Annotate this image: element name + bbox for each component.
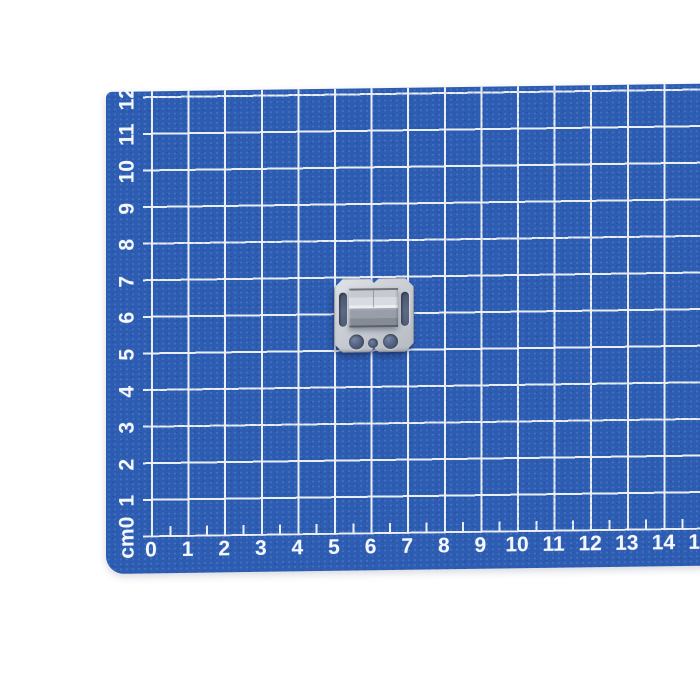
ruler-number-bottom: 7 [401,536,413,557]
ruler-number-bottom: 10 [505,534,528,555]
ruler-number-left: 10 [117,160,138,184]
ruler-number-left: 3 [117,422,138,434]
ruler-number-bottom: 4 [292,537,304,558]
ruler-number-left: 2 [117,459,138,471]
ruler-number-left: 7 [117,276,138,288]
ruler-number-bottom: 13 [615,533,638,554]
ruler-number-left: 9 [117,202,138,214]
cutting-mat: 0123456789101112131415 cm012345678910111… [106,83,700,574]
left-cm-ticks [143,91,151,537]
ruler-number-bottom: 9 [475,535,487,556]
ruler-number-bottom: 2 [218,538,230,559]
ruler-number-left: cm0 [117,517,138,559]
ruler-number-bottom: 3 [255,538,267,559]
ruler-number-bottom: 14 [652,532,675,553]
ruler-number-bottom: 1 [182,539,194,560]
grid-area [151,83,700,537]
ruler-number-left: 1 [117,495,138,507]
clip-hole-center [368,338,378,348]
clip-hole-right [383,334,398,349]
clip-hole-left [349,334,364,349]
ruler-number-left: 12 [117,87,138,111]
clip-slot-left [339,293,347,327]
photo-canvas: 0123456789101112131415 cm012345678910111… [0,0,700,700]
ruler-number-left: 11 [117,124,138,146]
ruler-number-bottom: 0 [145,539,157,560]
ruler-number-left: 8 [117,239,138,251]
clip-slot-right [401,292,409,326]
ruler-number-bottom: 5 [328,537,340,558]
ruler-number-left: 5 [117,349,138,361]
clip-body [349,288,398,328]
ruler-number-bottom: 12 [579,533,602,554]
metal-clip [334,278,414,353]
ruler-number-bottom: 11 [542,534,564,555]
ruler-number-bottom: 8 [438,535,450,556]
ruler-number-left: 6 [117,312,138,324]
clip-plate [334,278,414,353]
ruler-number-left: 4 [117,385,138,397]
ruler-number-bottom: 15 [688,532,700,553]
ruler-number-bottom: 6 [365,536,377,557]
